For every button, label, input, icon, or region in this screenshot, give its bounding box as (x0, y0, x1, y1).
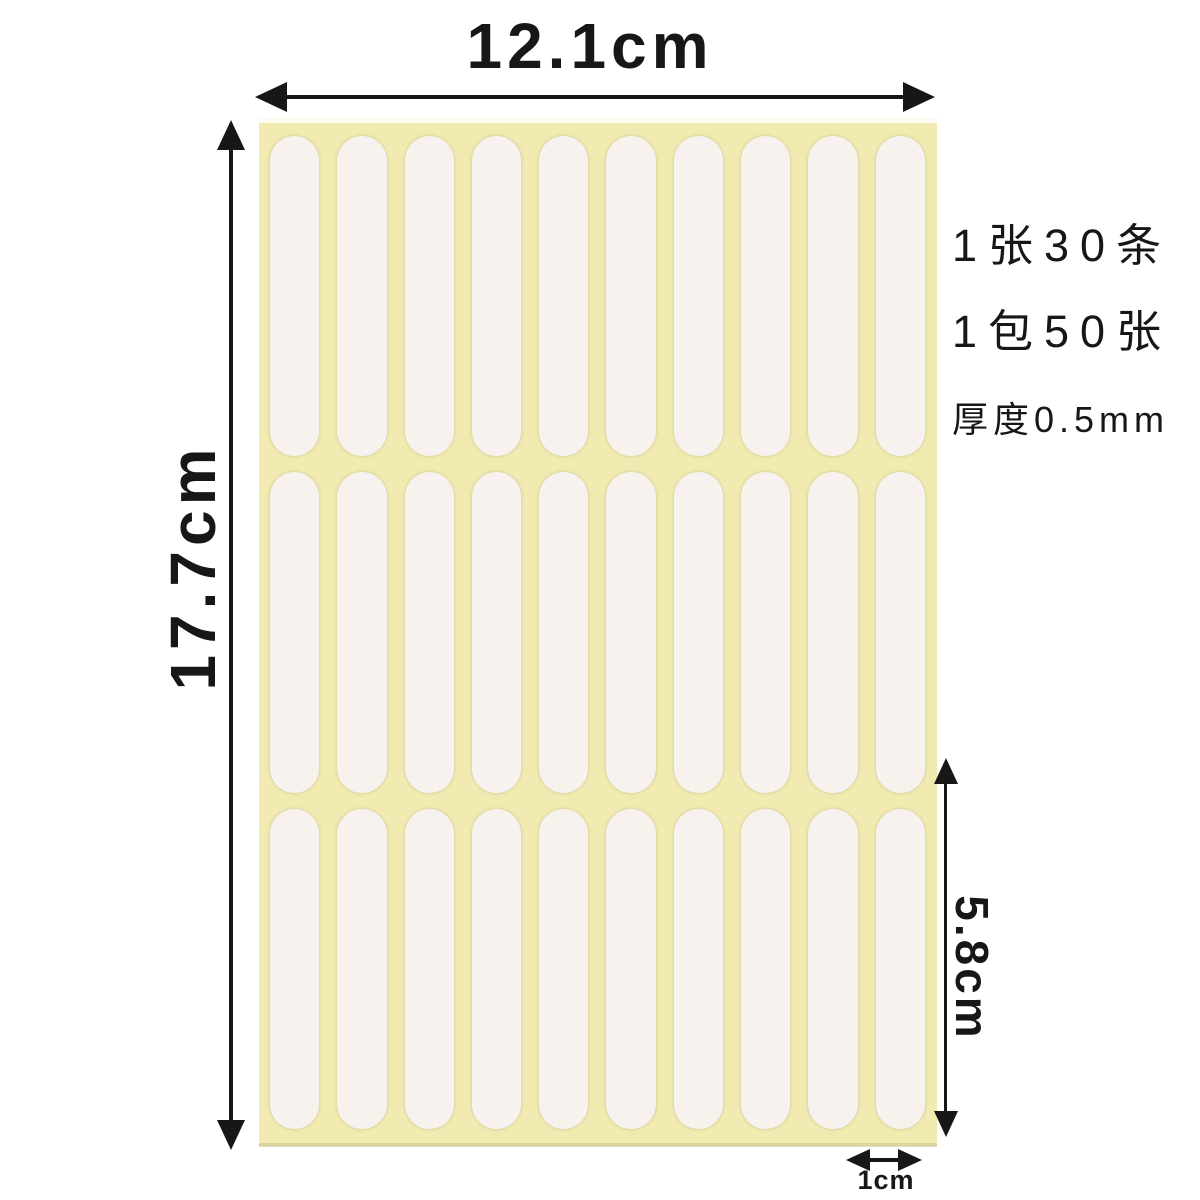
spec-strips-per-sheet: 1张30条 (952, 220, 1172, 272)
strip-width-arrow-line (868, 1158, 900, 1162)
adhesive-strip (337, 809, 386, 1129)
adhesive-strip (539, 472, 588, 792)
arrow-down-icon (217, 1120, 245, 1150)
adhesive-strip (270, 472, 319, 792)
adhesive-strip (472, 809, 521, 1129)
arrow-right-icon (903, 82, 935, 112)
width-arrow-line (285, 95, 907, 99)
strip-grid (259, 118, 937, 1146)
adhesive-strip (674, 472, 723, 792)
adhesive-strip (405, 809, 454, 1129)
adhesive-strip (674, 809, 723, 1129)
adhesive-strip (741, 472, 790, 792)
adhesive-strip (674, 136, 723, 456)
adhesive-strip (539, 809, 588, 1129)
adhesive-strip (808, 136, 857, 456)
adhesive-strip (808, 472, 857, 792)
sheet-width-label: 12.1cm (466, 12, 713, 80)
sheet-height-label: 17.7cm (158, 442, 228, 692)
spec-sheets-per-pack: 1包50张 (952, 306, 1172, 358)
height-arrow-line (229, 148, 233, 1122)
adhesive-strip (876, 472, 925, 792)
product-dimension-image: 12.1cm 17.7cm 5.8cm 1cm 1张30条 1包50张 厚度0.… (0, 0, 1200, 1200)
adhesive-strip (606, 136, 655, 456)
arrow-up-icon (934, 758, 958, 784)
arrow-down-icon (934, 1111, 958, 1137)
adhesive-strip (876, 809, 925, 1129)
adhesive-strip (808, 809, 857, 1129)
arrow-left-icon (846, 1149, 870, 1171)
adhesive-strip (270, 136, 319, 456)
strip-length-label: 5.8cm (950, 873, 994, 1063)
adhesive-strip (741, 136, 790, 456)
arrow-up-icon (217, 120, 245, 150)
adhesive-strip (472, 136, 521, 456)
adhesive-strip (741, 809, 790, 1129)
sticker-sheet (259, 118, 937, 1146)
adhesive-strip (405, 136, 454, 456)
adhesive-strip (270, 809, 319, 1129)
strip-length-arrow-line (944, 782, 947, 1112)
adhesive-strip (606, 809, 655, 1129)
arrow-left-icon (255, 82, 287, 112)
arrow-right-icon (898, 1149, 922, 1171)
adhesive-strip (539, 136, 588, 456)
adhesive-strip (405, 472, 454, 792)
adhesive-strip (337, 136, 386, 456)
adhesive-strip (876, 136, 925, 456)
adhesive-strip (337, 472, 386, 792)
adhesive-strip (472, 472, 521, 792)
spec-thickness: 厚度0.5mm (952, 399, 1169, 441)
adhesive-strip (606, 472, 655, 792)
